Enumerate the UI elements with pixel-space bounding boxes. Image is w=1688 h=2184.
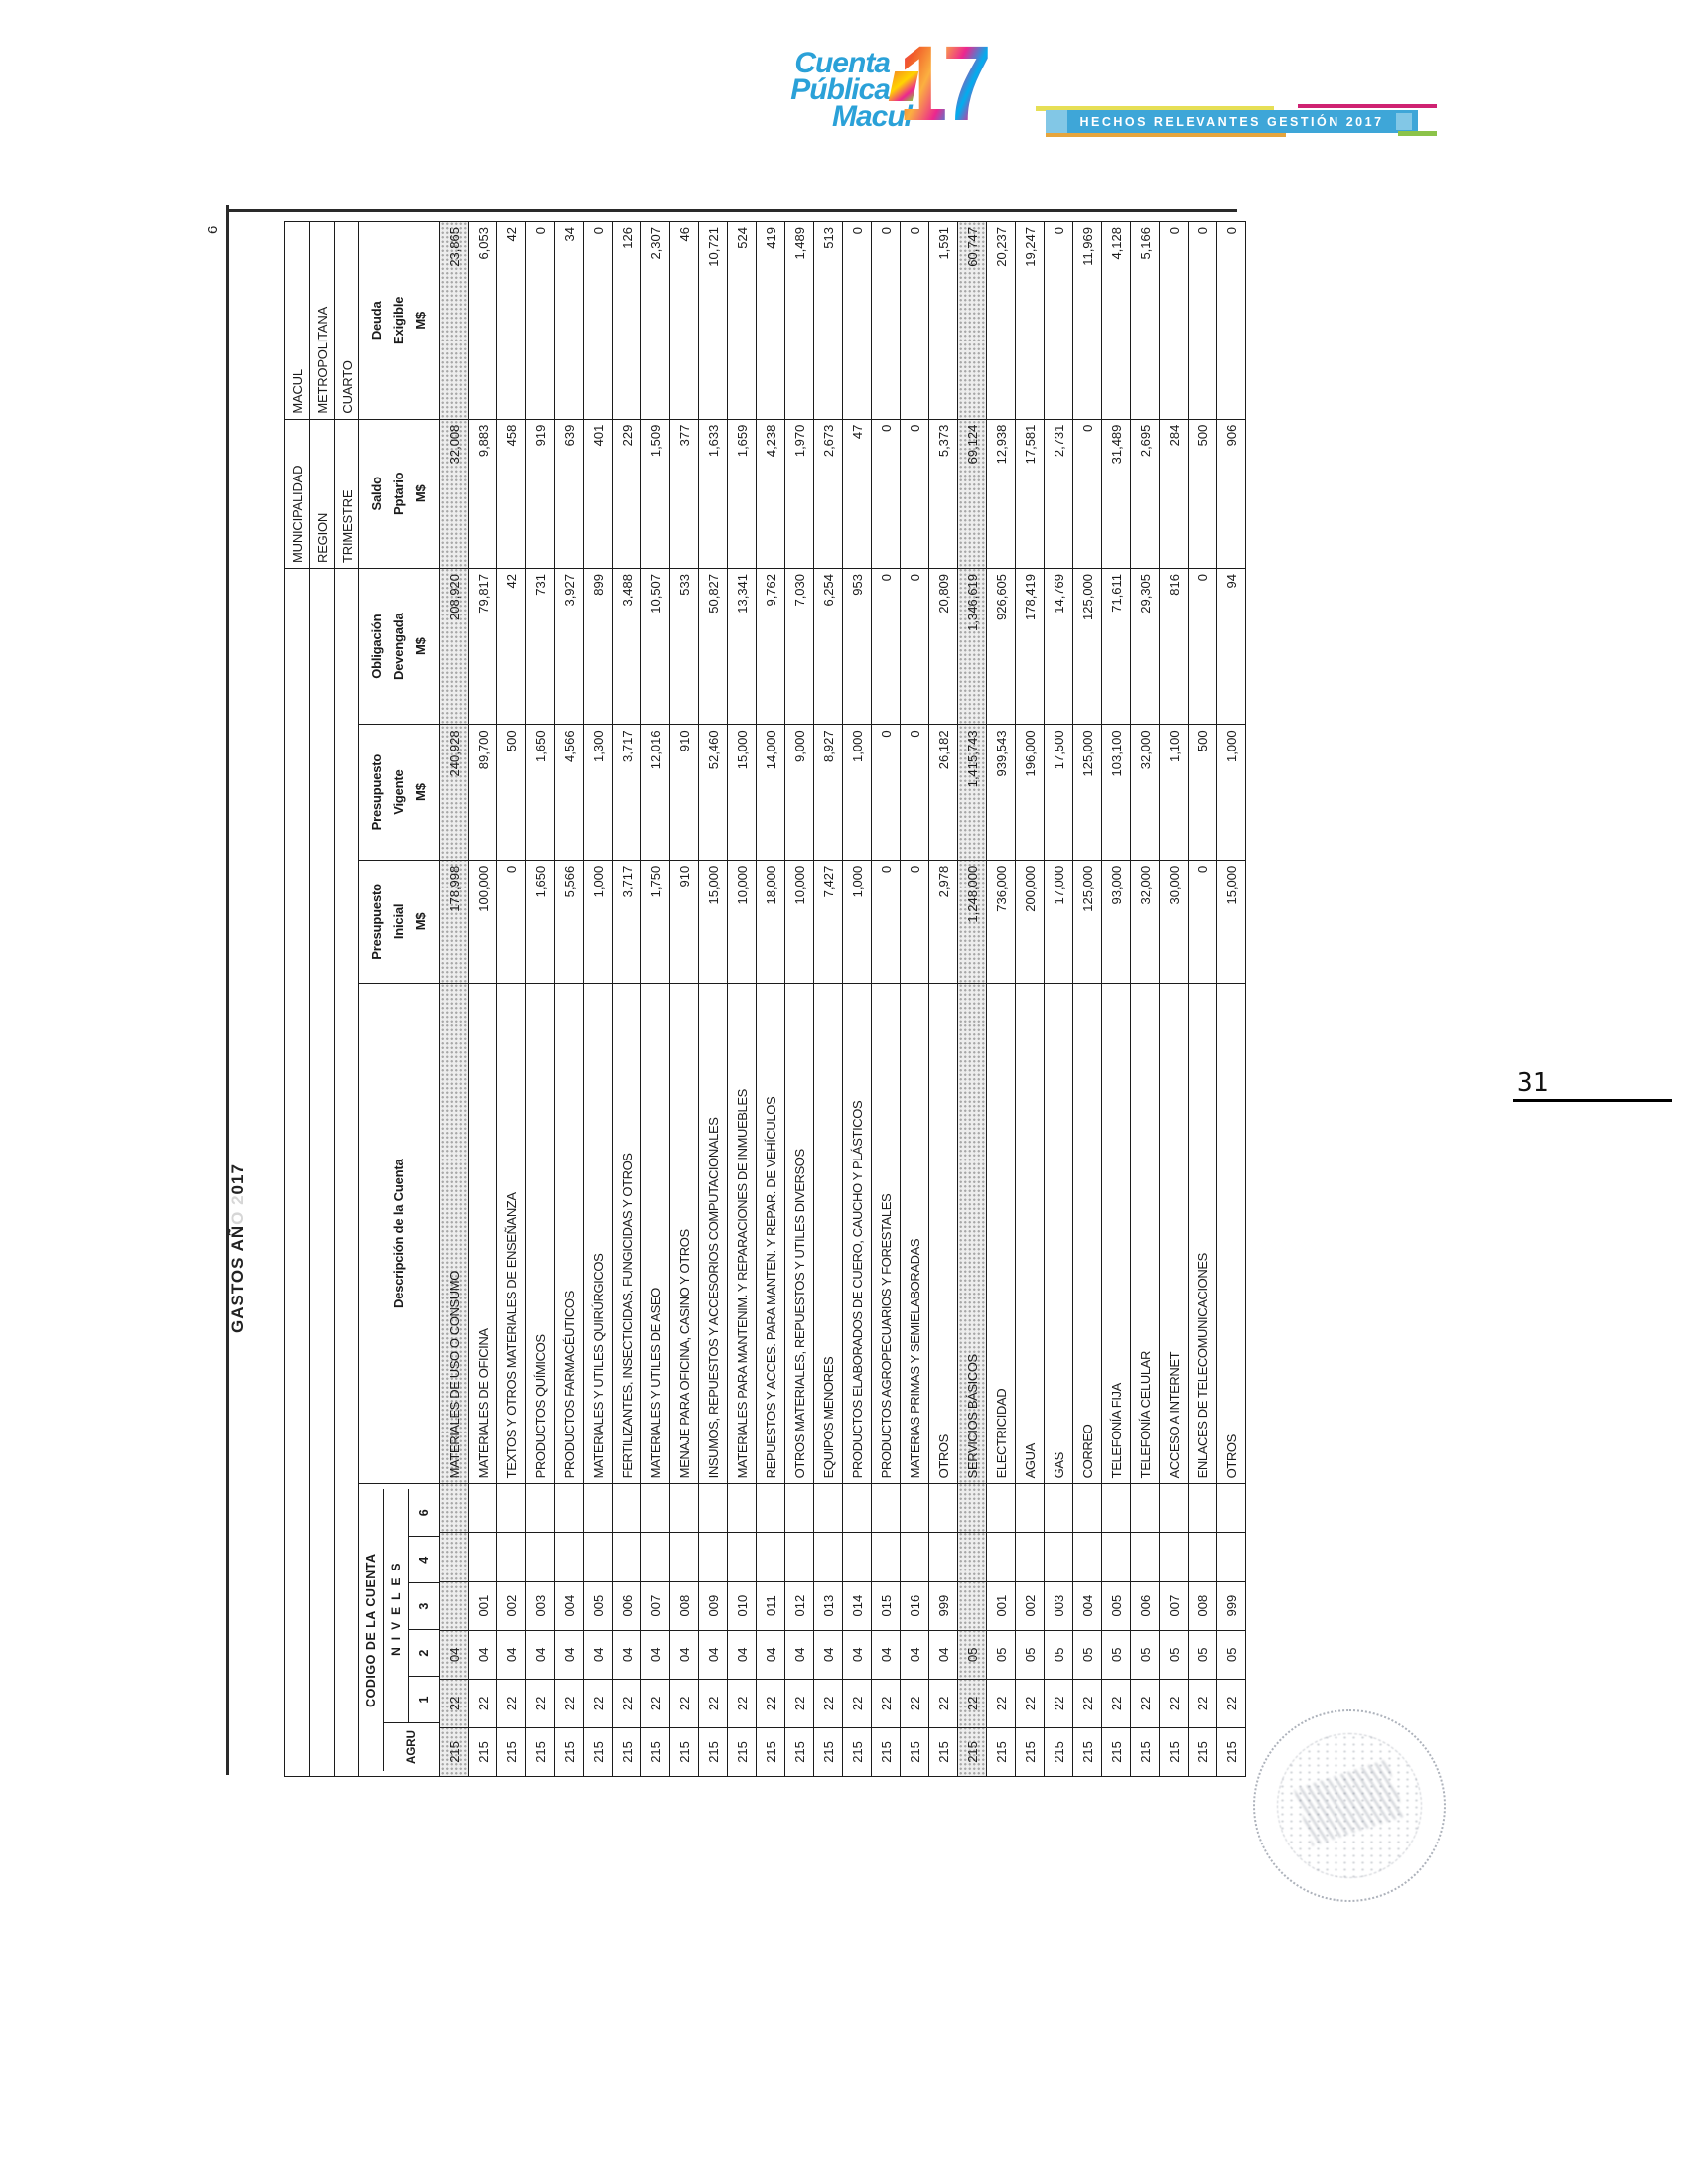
report-title-faded: O 2 (228, 1194, 247, 1224)
region-label: REGION (310, 419, 335, 568)
cell-deuda-exigible: 0 (872, 222, 901, 420)
cell-nivel3: 001 (469, 1581, 497, 1630)
cell-deuda-exigible: 0 (1217, 222, 1246, 420)
cell-nivel1: 22 (872, 1679, 901, 1727)
cell-nivel3: 015 (872, 1581, 901, 1630)
cell-nivel6 (497, 1484, 526, 1533)
sheet-edge-line-top (226, 205, 229, 1775)
cell-deuda-exigible: 19,247 (1016, 222, 1045, 420)
cell-nivel6 (1217, 1484, 1246, 1533)
cell-nivel1: 22 (1045, 1679, 1073, 1727)
logo-cuenta-publica-macul: Cuenta Pública Macul (753, 50, 890, 130)
cell-nivel3: 003 (1045, 1581, 1073, 1630)
table-row: 2152205003GAS17,00017,50014,7692,7310 (1045, 222, 1073, 1777)
cell-descripcion: MATERIALES PARA MANTENIM. Y REPARACIONES… (728, 984, 757, 1484)
cell-nivel1: 22 (785, 1679, 814, 1727)
cell-nivel4 (1073, 1533, 1102, 1581)
cell-nivel2: 04 (440, 1630, 469, 1679)
cell-presupuesto-inicial: 0 (901, 860, 929, 983)
cell-saldo-pptario: 31,489 (1102, 419, 1131, 568)
page-number-rule (1513, 1099, 1672, 1102)
cell-presupuesto-inicial: 15,000 (1217, 860, 1246, 983)
cell-deuda-exigible: 126 (613, 222, 641, 420)
cell-obligacion-devengada: 899 (584, 568, 613, 724)
cell-presupuesto-inicial: 18,000 (757, 860, 785, 983)
cell-nivel1: 22 (699, 1679, 728, 1727)
nivel-6-header: 6 (409, 1489, 439, 1536)
cell-nivel3: 006 (1131, 1581, 1160, 1630)
cell-nivel1: 22 (1131, 1679, 1160, 1727)
cell-nivel6 (699, 1484, 728, 1533)
cell-presupuesto-vigente: 910 (670, 725, 699, 860)
banner-green-line (1398, 131, 1437, 136)
table-row: 2152204001MATERIALES DE OFICINA100,00089… (469, 222, 497, 1777)
rotated-report-sheet: 6 GASTOS AÑO 2017 MUNICIPALIDAD MACUL RE… (205, 197, 1242, 1785)
meta-row-trimestre: TRIMESTRE CUARTO (335, 222, 359, 1777)
cell-nivel4 (526, 1533, 555, 1581)
nivel-3-header: 3 (409, 1582, 439, 1629)
table-row: 2152205001ELECTRICIDAD736,000939,543926,… (987, 222, 1016, 1777)
cell-nivel2: 05 (1131, 1630, 1160, 1679)
cell-obligacion-devengada: 953 (843, 568, 872, 724)
cell-deuda-exigible: 0 (901, 222, 929, 420)
spacer (310, 568, 335, 1776)
cell-obligacion-devengada: 178,419 (1016, 568, 1045, 724)
cell-deuda-exigible: 0 (526, 222, 555, 420)
cell-presupuesto-vigente: 125,000 (1073, 725, 1102, 860)
cell-nivel3: 002 (1016, 1581, 1045, 1630)
cell-presupuesto-vigente: 0 (901, 725, 929, 860)
cell-deuda-exigible: 4,128 (1102, 222, 1131, 420)
cell-nivel2: 04 (641, 1630, 670, 1679)
cell-nivel3: 010 (728, 1581, 757, 1630)
cell-obligacion-devengada: 50,827 (699, 568, 728, 724)
cell-nivel3: 999 (929, 1581, 958, 1630)
cell-descripcion: FERTILIZANTES, INSECTICIDAS, FUNGICIDAS … (613, 984, 641, 1484)
cell-obligacion-devengada: 533 (670, 568, 699, 724)
cell-saldo-pptario: 32,008 (440, 419, 469, 568)
cell-nivel4 (872, 1533, 901, 1581)
table-row: 2152204003PRODUCTOS QUÍMICOS1,6501,65073… (526, 222, 555, 1777)
cell-descripcion: TEXTOS Y OTROS MATERIALES DE ENSEÑANZA (497, 984, 526, 1484)
cell-presupuesto-inicial: 736,000 (987, 860, 1016, 983)
cell-nivel2: 04 (843, 1630, 872, 1679)
sheet-page-number: 6 (205, 208, 221, 234)
cell-nivel4 (1217, 1533, 1246, 1581)
cell-saldo-pptario: 5,373 (929, 419, 958, 568)
cell-descripcion: OTROS (929, 984, 958, 1484)
cell-descripcion: TELEFONÍA FIJA (1102, 984, 1131, 1484)
report-title-prefix: GASTOS AÑ (228, 1225, 247, 1333)
cell-nivel2: 04 (929, 1630, 958, 1679)
cell-nivel6 (613, 1484, 641, 1533)
cell-presupuesto-inicial: 5,566 (555, 860, 584, 983)
cell-saldo-pptario: 639 (555, 419, 584, 568)
cell-obligacion-devengada: 79,817 (469, 568, 497, 724)
trimestre-label: TRIMESTRE (335, 419, 359, 568)
cell-nivel3: 004 (1073, 1581, 1102, 1630)
cell-obligacion-devengada: 208,920 (440, 568, 469, 724)
hechos-relevantes-banner: HECHOS RELEVANTES GESTIÓN 2017 (1036, 102, 1443, 140)
cell-descripcion: MATERIALES Y UTILES DE ASEO (641, 984, 670, 1484)
cell-saldo-pptario: 401 (584, 419, 613, 568)
cell-presupuesto-inicial: 0 (1189, 860, 1217, 983)
cell-presupuesto-vigente: 8,927 (814, 725, 843, 860)
cell-agrup: 215 (958, 1727, 987, 1776)
cell-descripcion: ENLACES DE TELECOMUNICACIONES (1189, 984, 1217, 1484)
nivel-agru-header: AGRU (384, 1722, 439, 1771)
cell-presupuesto-inicial: 10,000 (785, 860, 814, 983)
cell-saldo-pptario: 229 (613, 419, 641, 568)
cell-nivel2: 04 (699, 1630, 728, 1679)
cell-saldo-pptario: 919 (526, 419, 555, 568)
cell-obligacion-devengada: 0 (1189, 568, 1217, 724)
cell-obligacion-devengada: 1,346,619 (958, 568, 987, 724)
cell-presupuesto-inicial: 200,000 (1016, 860, 1045, 983)
codigo-de-la-cuenta-header: CODIGO DE LA CUENTA (359, 1489, 384, 1771)
cell-nivel3: 001 (987, 1581, 1016, 1630)
cell-nivel4 (440, 1533, 469, 1581)
cell-nivel1: 22 (641, 1679, 670, 1727)
cell-deuda-exigible: 60,747 (958, 222, 987, 420)
cell-nivel4 (1189, 1533, 1217, 1581)
table-row: 2152204004PRODUCTOS FARMACÉUTICOS5,5664,… (555, 222, 584, 1777)
cell-agrup: 215 (555, 1727, 584, 1776)
cell-nivel3: 006 (613, 1581, 641, 1630)
cell-deuda-exigible: 419 (757, 222, 785, 420)
cell-nivel2: 05 (1016, 1630, 1045, 1679)
cell-saldo-pptario: 1,659 (728, 419, 757, 568)
table-row: 2152204006FERTILIZANTES, INSECTICIDAS, F… (613, 222, 641, 1777)
cell-descripcion: OTROS MATERIALES, REPUESTOS Y UTILES DIV… (785, 984, 814, 1484)
table-row: 2152204016MATERIAS PRIMAS Y SEMIELABORAD… (901, 222, 929, 1777)
cell-deuda-exigible: 524 (728, 222, 757, 420)
table-row: 2152204013EQUIPOS MENORES7,4278,9276,254… (814, 222, 843, 1777)
cell-obligacion-devengada: 6,254 (814, 568, 843, 724)
cell-nivel6 (728, 1484, 757, 1533)
cell-obligacion-devengada: 29,305 (1131, 568, 1160, 724)
table-row: 2152205005TELEFONÍA FIJA93,000103,10071,… (1102, 222, 1131, 1777)
cell-descripcion: MATERIAS PRIMAS Y SEMIELABORADAS (901, 984, 929, 1484)
cell-agrup: 215 (613, 1727, 641, 1776)
cell-agrup: 215 (699, 1727, 728, 1776)
cell-nivel4 (1016, 1533, 1045, 1581)
code-header-cell: CODIGO DE LA CUENTA AGRU NIVELES 1 2 3 4… (359, 1484, 440, 1777)
logo-line-macul: Macul (774, 103, 912, 130)
cell-presupuesto-vigente: 4,566 (555, 725, 584, 860)
cell-presupuesto-vigente: 17,500 (1045, 725, 1073, 860)
cell-presupuesto-inicial: 125,000 (1073, 860, 1102, 983)
cell-nivel6 (987, 1484, 1016, 1533)
cell-nivel4 (584, 1533, 613, 1581)
cell-deuda-exigible: 1,591 (929, 222, 958, 420)
cell-agrup: 215 (1102, 1727, 1131, 1776)
table-row: 2152205006TELEFONÍA CELULAR32,00032,0002… (1131, 222, 1160, 1777)
cell-nivel4 (1102, 1533, 1131, 1581)
cell-nivel3: 011 (757, 1581, 785, 1630)
cell-presupuesto-vigente: 9,000 (785, 725, 814, 860)
banner-magenta-line (1298, 104, 1437, 108)
cell-presupuesto-inicial: 0 (872, 860, 901, 983)
cell-obligacion-devengada: 0 (901, 568, 929, 724)
table-row: 2152205002AGUA200,000196,000178,41917,58… (1016, 222, 1045, 1777)
table-row: 2152204014PRODUCTOS ELABORADOS DE CUERO,… (843, 222, 872, 1777)
cell-descripcion: MENAJE PARA OFICINA, CASINO Y OTROS (670, 984, 699, 1484)
cell-deuda-exigible: 46 (670, 222, 699, 420)
cell-agrup: 215 (814, 1727, 843, 1776)
cell-nivel1: 22 (1217, 1679, 1246, 1727)
region-value: METROPOLITANA (310, 222, 335, 420)
cell-nivel4 (699, 1533, 728, 1581)
cell-nivel6 (872, 1484, 901, 1533)
cell-nivel2: 05 (1160, 1630, 1189, 1679)
cell-presupuesto-inicial: 17,000 (1045, 860, 1073, 983)
niveles-header: NIVELES (384, 1489, 409, 1722)
cell-nivel2: 05 (1102, 1630, 1131, 1679)
cell-descripcion: REPUESTOS Y ACCES. PARA MANTEN. Y REPAR.… (757, 984, 785, 1484)
cell-nivel6 (843, 1484, 872, 1533)
cell-nivel1: 22 (728, 1679, 757, 1727)
cell-deuda-exigible: 0 (584, 222, 613, 420)
cell-nivel2: 05 (958, 1630, 987, 1679)
cell-obligacion-devengada: 731 (526, 568, 555, 724)
cell-nivel2: 04 (497, 1630, 526, 1679)
cell-presupuesto-inicial: 100,000 (469, 860, 497, 983)
logo-year-17: 17 (899, 30, 1013, 149)
cell-nivel6 (555, 1484, 584, 1533)
cell-deuda-exigible: 20,237 (987, 222, 1016, 420)
cell-nivel2: 05 (1189, 1630, 1217, 1679)
nivel-1-header: 1 (409, 1676, 439, 1722)
cell-agrup: 215 (757, 1727, 785, 1776)
cell-nivel4 (814, 1533, 843, 1581)
cell-deuda-exigible: 2,307 (641, 222, 670, 420)
cell-nivel1: 22 (1102, 1679, 1131, 1727)
descripcion-header: Descripción de la Cuenta (359, 984, 440, 1484)
cell-nivel4 (641, 1533, 670, 1581)
cell-nivel4 (728, 1533, 757, 1581)
table-row: 2152205999OTROS15,0001,000949060 (1217, 222, 1246, 1777)
cell-descripcion: ACCESO A INTERNET (1160, 984, 1189, 1484)
cell-nivel6 (1073, 1484, 1102, 1533)
banner-text: HECHOS RELEVANTES GESTIÓN 2017 (1079, 115, 1383, 129)
cell-presupuesto-vigente: 26,182 (929, 725, 958, 860)
cell-saldo-pptario: 1,633 (699, 419, 728, 568)
cell-nivel1: 22 (526, 1679, 555, 1727)
cell-saldo-pptario: 500 (1189, 419, 1217, 568)
cell-presupuesto-inicial: 32,000 (1131, 860, 1160, 983)
cell-agrup: 215 (872, 1727, 901, 1776)
cell-descripcion: ELECTRICIDAD (987, 984, 1016, 1484)
cell-agrup: 215 (1073, 1727, 1102, 1776)
cell-presupuesto-vigente: 32,000 (1131, 725, 1160, 860)
cell-descripcion: MATERIALES DE USO O CONSUMO (440, 984, 469, 1484)
cell-nivel6 (958, 1484, 987, 1533)
cell-nivel1: 22 (469, 1679, 497, 1727)
table-body: 2152204MATERIALES DE USO O CONSUMO178,99… (440, 222, 1246, 1777)
cell-nivel4 (958, 1533, 987, 1581)
cell-presupuesto-inicial: 7,427 (814, 860, 843, 983)
cell-saldo-pptario: 4,238 (757, 419, 785, 568)
cell-agrup: 215 (641, 1727, 670, 1776)
cell-obligacion-devengada: 816 (1160, 568, 1189, 724)
cell-nivel2: 04 (901, 1630, 929, 1679)
table-row: 2152205SERVICIOS BÁSICOS1,248,0001,415,7… (958, 222, 987, 1777)
cell-saldo-pptario: 2,695 (1131, 419, 1160, 568)
cell-nivel6 (929, 1484, 958, 1533)
banner-orange-line (1046, 133, 1286, 137)
cell-nivel6 (584, 1484, 613, 1533)
cell-agrup: 215 (929, 1727, 958, 1776)
cell-saldo-pptario: 0 (901, 419, 929, 568)
cell-presupuesto-vigente: 89,700 (469, 725, 497, 860)
cell-obligacion-devengada: 0 (872, 568, 901, 724)
obligacion-devengada-header: Obligación Devengada M$ (359, 568, 440, 724)
cell-agrup: 215 (440, 1727, 469, 1776)
cell-deuda-exigible: 0 (843, 222, 872, 420)
cell-presupuesto-inicial: 3,717 (613, 860, 641, 983)
cell-presupuesto-vigente: 0 (872, 725, 901, 860)
page-number: 31 (1517, 1068, 1548, 1098)
cell-nivel3: 014 (843, 1581, 872, 1630)
cell-presupuesto-vigente: 15,000 (728, 725, 757, 860)
cell-deuda-exigible: 513 (814, 222, 843, 420)
cell-presupuesto-inicial: 910 (670, 860, 699, 983)
cell-nivel3: 008 (1189, 1581, 1217, 1630)
cell-saldo-pptario: 12,938 (987, 419, 1016, 568)
cell-nivel1: 22 (814, 1679, 843, 1727)
cell-presupuesto-inicial: 93,000 (1102, 860, 1131, 983)
table-row: 2152205007ACCESO A INTERNET30,0001,10081… (1160, 222, 1189, 1777)
cell-nivel2: 04 (613, 1630, 641, 1679)
cell-nivel6 (469, 1484, 497, 1533)
cell-saldo-pptario: 9,883 (469, 419, 497, 568)
cell-agrup: 215 (526, 1727, 555, 1776)
cell-presupuesto-inicial: 1,000 (584, 860, 613, 983)
report-title-suffix: 017 (228, 1163, 247, 1194)
cell-presupuesto-inicial: 1,000 (843, 860, 872, 983)
cell-nivel6 (1131, 1484, 1160, 1533)
cell-deuda-exigible: 1,489 (785, 222, 814, 420)
table-row: 2152204010MATERIALES PARA MANTENIM. Y RE… (728, 222, 757, 1777)
cell-nivel2: 04 (526, 1630, 555, 1679)
municipalidad-label: MUNICIPALIDAD (285, 419, 310, 568)
cell-presupuesto-inicial: 30,000 (1160, 860, 1189, 983)
cell-nivel2: 05 (1045, 1630, 1073, 1679)
cell-presupuesto-vigente: 103,100 (1102, 725, 1131, 860)
cell-saldo-pptario: 0 (1073, 419, 1102, 568)
cell-agrup: 215 (1131, 1727, 1160, 1776)
table-row: 2152204012OTROS MATERIALES, REPUESTOS Y … (785, 222, 814, 1777)
cell-agrup: 215 (901, 1727, 929, 1776)
cell-nivel2: 05 (987, 1630, 1016, 1679)
cell-presupuesto-vigente: 500 (497, 725, 526, 860)
cell-saldo-pptario: 17,581 (1016, 419, 1045, 568)
cell-nivel1: 22 (440, 1679, 469, 1727)
meta-row-municipalidad: MUNICIPALIDAD MACUL (285, 222, 310, 1777)
cell-nivel3: 009 (699, 1581, 728, 1630)
cell-nivel4 (929, 1533, 958, 1581)
cell-nivel2: 05 (1073, 1630, 1102, 1679)
table-row: 2152204011REPUESTOS Y ACCES. PARA MANTEN… (757, 222, 785, 1777)
cell-saldo-pptario: 2,731 (1045, 419, 1073, 568)
cell-nivel1: 22 (958, 1679, 987, 1727)
cell-nivel4 (843, 1533, 872, 1581)
budget-table: MUNICIPALIDAD MACUL REGION METROPOLITANA… (284, 221, 1246, 1777)
cell-saldo-pptario: 0 (872, 419, 901, 568)
cell-presupuesto-inicial: 178,998 (440, 860, 469, 983)
cell-saldo-pptario: 906 (1217, 419, 1246, 568)
cell-nivel4 (901, 1533, 929, 1581)
cell-descripcion: TELEFONÍA CELULAR (1131, 984, 1160, 1484)
cell-nivel4 (1045, 1533, 1073, 1581)
cell-nivel3: 012 (785, 1581, 814, 1630)
cell-agrup: 215 (1189, 1727, 1217, 1776)
cell-nivel2: 04 (469, 1630, 497, 1679)
cell-presupuesto-vigente: 1,300 (584, 725, 613, 860)
cell-agrup: 215 (987, 1727, 1016, 1776)
table-row: 2152204002TEXTOS Y OTROS MATERIALES DE E… (497, 222, 526, 1777)
cell-obligacion-devengada: 42 (497, 568, 526, 724)
cell-nivel2: 04 (555, 1630, 584, 1679)
cell-saldo-pptario: 2,673 (814, 419, 843, 568)
cell-obligacion-devengada: 14,769 (1045, 568, 1073, 724)
table-row: 2152204015PRODUCTOS AGROPECUARIOS Y FORE… (872, 222, 901, 1777)
cell-nivel1: 22 (987, 1679, 1016, 1727)
cell-nivel1: 22 (757, 1679, 785, 1727)
cell-descripcion: PRODUCTOS FARMACÉUTICOS (555, 984, 584, 1484)
report-title: GASTOS AÑO 2017 (228, 1163, 248, 1333)
cell-deuda-exigible: 5,166 (1131, 222, 1160, 420)
cell-presupuesto-vigente: 1,000 (843, 725, 872, 860)
banner-right-block (1396, 113, 1412, 130)
cell-deuda-exigible: 10,721 (699, 222, 728, 420)
cell-nivel3: 016 (901, 1581, 929, 1630)
saldo-pptario-header: Saldo Pptario M$ (359, 419, 440, 568)
cell-obligacion-devengada: 3,927 (555, 568, 584, 724)
cell-nivel1: 22 (1160, 1679, 1189, 1727)
sheet-edge-line-right (226, 209, 1237, 212)
cell-nivel2: 04 (728, 1630, 757, 1679)
cell-nivel6 (1102, 1484, 1131, 1533)
table-row: 2152204007MATERIALES Y UTILES DE ASEO1,7… (641, 222, 670, 1777)
cell-nivel4 (987, 1533, 1016, 1581)
table-row: 2152204999OTROS2,97826,18220,8095,3731,5… (929, 222, 958, 1777)
cell-presupuesto-vigente: 52,460 (699, 725, 728, 860)
cell-descripcion: PRODUCTOS AGROPECUARIOS Y FORESTALES (872, 984, 901, 1484)
cell-nivel3 (958, 1581, 987, 1630)
cell-saldo-pptario: 458 (497, 419, 526, 568)
cell-presupuesto-vigente: 12,016 (641, 725, 670, 860)
cell-presupuesto-inicial: 15,000 (699, 860, 728, 983)
cell-saldo-pptario: 284 (1160, 419, 1189, 568)
municipalidad-value: MACUL (285, 222, 310, 420)
cell-obligacion-devengada: 926,605 (987, 568, 1016, 724)
nivel-2-header: 2 (409, 1629, 439, 1676)
cell-nivel1: 22 (1189, 1679, 1217, 1727)
column-header-row: CODIGO DE LA CUENTA AGRU NIVELES 1 2 3 4… (359, 222, 440, 1777)
cell-nivel1: 22 (497, 1679, 526, 1727)
cell-nivel1: 22 (1016, 1679, 1045, 1727)
cell-nivel3: 005 (1102, 1581, 1131, 1630)
table-row: 2152205008ENLACES DE TELECOMUNICACIONES0… (1189, 222, 1217, 1777)
cell-presupuesto-vigente: 3,717 (613, 725, 641, 860)
cell-presupuesto-vigente: 1,650 (526, 725, 555, 860)
cell-nivel6 (526, 1484, 555, 1533)
cell-agrup: 215 (728, 1727, 757, 1776)
cell-descripcion: OTROS (1217, 984, 1246, 1484)
cell-presupuesto-inicial: 1,750 (641, 860, 670, 983)
